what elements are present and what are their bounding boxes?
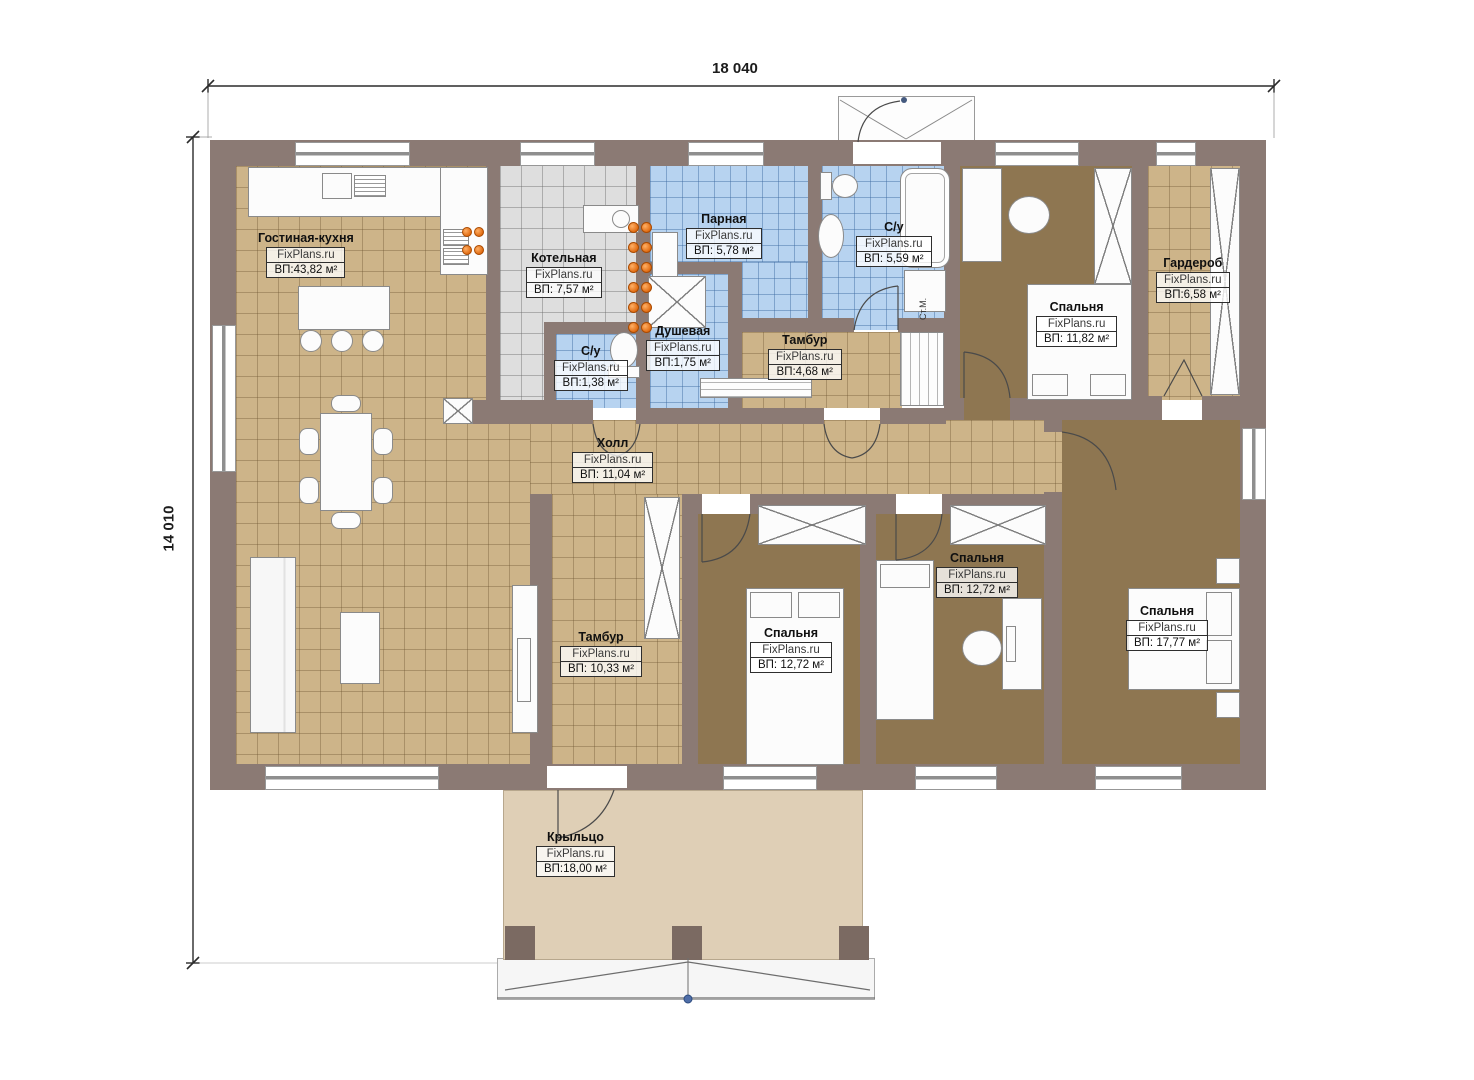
- label-vestibule-bottom: Тамбур FixPlans.ru ВП: 10,33 м²: [560, 630, 642, 677]
- pillow: [750, 592, 792, 618]
- sofa: [250, 557, 296, 733]
- porch-post: [672, 926, 702, 960]
- entry-vestibule: [838, 96, 975, 142]
- watermark: FixPlans.ru: [647, 341, 719, 356]
- wall-boiler-hall-a: [473, 400, 593, 424]
- wall-bedroom-se-left-stub: [1044, 420, 1062, 432]
- room-area: ВП:43,82 м²: [267, 263, 344, 277]
- dining-chair: [331, 395, 361, 412]
- dimension-width: 18 040: [712, 60, 758, 77]
- room-area: ВП:1,38 м²: [555, 376, 627, 390]
- label-bedroom-sw: Спальня FixPlans.ru ВП: 12,72 м²: [750, 626, 832, 673]
- sauna-heater-stone: [641, 302, 652, 313]
- hall-cabinet: [900, 332, 944, 406]
- watermark: FixPlans.ru: [937, 568, 1017, 583]
- label-vestibule-top: Тамбур FixPlans.ru ВП:4,68 м²: [768, 333, 842, 380]
- room-name: Гостиная-кухня: [258, 231, 354, 245]
- room-name: Парная: [701, 212, 746, 226]
- room-name: Спальня: [1140, 604, 1194, 618]
- pillow: [1206, 640, 1232, 684]
- label-bedroom-se: Спальня FixPlans.ru ВП: 17,77 м²: [1126, 604, 1208, 651]
- room-area: ВП: 12,72 м²: [937, 583, 1017, 597]
- sauna-heater-stone: [628, 322, 639, 333]
- stove-burner-icon: [474, 245, 484, 255]
- watermark: FixPlans.ru: [687, 229, 761, 244]
- window-right-bedroom-se: [1242, 428, 1266, 500]
- pillow: [1090, 374, 1126, 396]
- dining-chair: [299, 428, 319, 455]
- window-top-sauna: [688, 142, 764, 166]
- sauna-heater-stone: [641, 262, 652, 273]
- window-bottom-bedroom-s: [915, 766, 997, 790]
- kitchen-sink: [322, 173, 352, 199]
- wall-vestibule-bedroom-sw: [682, 494, 698, 765]
- room-name: Холл: [597, 436, 628, 450]
- stove-burner-icon: [474, 227, 484, 237]
- room-name: Крыльцо: [547, 830, 604, 844]
- room-area: ВП: 5,78 м²: [687, 244, 761, 258]
- entry-door-opening: [853, 142, 941, 164]
- dining-chair: [373, 428, 393, 455]
- wall-bedroom-wardrobe: [1132, 165, 1148, 420]
- dining-table: [320, 413, 372, 511]
- window-bottom-bedroom-sw: [723, 766, 817, 790]
- porch-post: [839, 926, 869, 960]
- shower-tray: [648, 276, 706, 328]
- wall-wardrobe-bottom-a: [1132, 396, 1162, 420]
- label-sauna: Парная FixPlans.ru ВП: 5,78 м²: [686, 212, 762, 259]
- wall-hall-top-b: [880, 408, 946, 424]
- wardrobe-cabinet: [644, 497, 680, 639]
- window-bottom-living: [265, 766, 439, 790]
- label-porch: Крыльцо FixPlans.ru ВП:18,00 м²: [536, 830, 615, 877]
- pillow: [798, 592, 840, 618]
- coffee-table: [340, 612, 380, 684]
- porch-steps-slab: [497, 958, 875, 1000]
- room-name: Тамбур: [578, 630, 623, 644]
- porch-post: [505, 926, 535, 960]
- wall-bedroom-se-left: [1044, 492, 1062, 765]
- sauna-heater-stone: [628, 302, 639, 313]
- watermark: FixPlans.ru: [1037, 317, 1116, 332]
- label-shower-room: Душевая FixPlans.ru ВП:1,75 м²: [646, 324, 720, 371]
- watermark: FixPlans.ru: [561, 647, 641, 662]
- label-living-kitchen: Гостиная-кухня FixPlans.ru ВП:43,82 м²: [258, 231, 354, 278]
- room-name: Котельная: [531, 251, 596, 265]
- desk-chair: [962, 630, 1002, 666]
- dimension-height: 14 010: [160, 506, 177, 552]
- watermark: FixPlans.ru: [267, 248, 344, 263]
- window-left-living: [212, 325, 236, 472]
- room-name: Тамбур: [782, 333, 827, 347]
- sauna-heater-stone: [628, 222, 639, 233]
- room-area: ВП: 12,72 м²: [751, 658, 831, 672]
- room-name: Спальня: [950, 551, 1004, 565]
- sauna-heater-stone: [641, 222, 652, 233]
- window-bottom-bedroom-se: [1095, 766, 1182, 790]
- toilet-tank-main: [820, 172, 832, 200]
- wall-wardrobe-bottom-b: [1202, 396, 1240, 420]
- room-area: ВП: 11,04 м²: [573, 468, 652, 482]
- stove-burner-icon: [462, 227, 472, 237]
- nightstand: [1216, 692, 1240, 718]
- label-wardrobe-room: Гардероб FixPlans.ru ВП:6,58 м²: [1156, 256, 1230, 303]
- room-area: ВП: 17,77 м²: [1127, 636, 1207, 650]
- watermark: FixPlans.ru: [1157, 273, 1229, 288]
- wall-bath-bottom-b: [898, 318, 946, 332]
- porch-door-opening: [547, 766, 627, 788]
- wall-bedroom-ne-bottom-a: [944, 398, 964, 420]
- room-area: ВП:1,75 м²: [647, 356, 719, 370]
- room-area: ВП: 7,57 м²: [527, 283, 601, 297]
- wardrobe-cabinet: [1094, 168, 1132, 284]
- floor-plan: Ст.М.: [0, 0, 1474, 1080]
- bar-stool: [300, 330, 322, 352]
- computer-monitor: [1006, 626, 1016, 662]
- wall-hall-top-a: [684, 408, 824, 424]
- room-area: ВП: 11,82 м²: [1037, 332, 1116, 346]
- room-area: ВП:4,68 м²: [769, 365, 841, 379]
- tv-screen: [517, 638, 531, 702]
- bathroom-sink: [818, 214, 844, 258]
- dining-chair: [299, 477, 319, 504]
- window-top-wardrobe: [1156, 142, 1196, 166]
- wall-shower-right: [728, 262, 742, 424]
- washing-machine-label: Ст.М.: [918, 280, 928, 320]
- sauna-heater-stone: [628, 282, 639, 293]
- kitchen-island: [298, 286, 390, 330]
- label-bathroom-main: С/у FixPlans.ru ВП: 5,59 м²: [856, 220, 932, 267]
- sauna-heater-stone: [641, 242, 652, 253]
- wardrobe-cabinet: [950, 505, 1046, 545]
- pillow: [1032, 374, 1068, 396]
- sauna-heater-stone: [628, 262, 639, 273]
- watermark: FixPlans.ru: [857, 237, 931, 252]
- watermark: FixPlans.ru: [555, 361, 627, 376]
- desk: [962, 168, 1002, 262]
- window-top-kitchen: [295, 142, 410, 166]
- room-name: Спальня: [764, 626, 818, 640]
- wall-bedroom-ne-bottom-b: [1010, 398, 1134, 420]
- room-name: С/у: [581, 344, 600, 358]
- nightstand: [1216, 558, 1240, 584]
- watermark: FixPlans.ru: [573, 453, 652, 468]
- wardrobe-cabinet: [758, 505, 866, 545]
- window-top-boiler: [520, 142, 595, 166]
- desk-chair: [1008, 196, 1050, 234]
- bar-stool: [362, 330, 384, 352]
- stove-burner-icon: [462, 245, 472, 255]
- kitchen-drainer: [354, 175, 386, 197]
- dining-chair: [373, 477, 393, 504]
- bar-stool: [331, 330, 353, 352]
- window-top-bedroom-ne: [995, 142, 1079, 166]
- watermark: FixPlans.ru: [527, 268, 601, 283]
- room-area: ВП:18,00 м²: [537, 862, 614, 876]
- room-area: ВП: 10,33 м²: [561, 662, 641, 676]
- watermark: FixPlans.ru: [751, 643, 831, 658]
- dining-chair: [331, 512, 361, 529]
- label-boiler-room: Котельная FixPlans.ru ВП: 7,57 м²: [526, 251, 602, 298]
- label-bedroom-s: Спальня FixPlans.ru ВП: 12,72 м²: [936, 551, 1018, 598]
- pillow: [880, 564, 930, 588]
- label-hall: Холл FixPlans.ru ВП: 11,04 м²: [572, 436, 653, 483]
- watermark: FixPlans.ru: [769, 350, 841, 365]
- room-area: ВП:6,58 м²: [1157, 288, 1229, 302]
- label-bedroom-ne: Спальня FixPlans.ru ВП: 11,82 м²: [1036, 300, 1117, 347]
- sauna-heater-stone: [641, 282, 652, 293]
- watermark: FixPlans.ru: [537, 847, 614, 862]
- wall-bath-bottom-a: [742, 318, 854, 332]
- room-name: Душевая: [655, 324, 710, 338]
- room-name: С/у: [884, 220, 903, 234]
- sauna-heater-stone: [628, 242, 639, 253]
- room-area: ВП: 5,59 м²: [857, 252, 931, 266]
- room-name: Спальня: [1050, 300, 1104, 314]
- watermark: FixPlans.ru: [1127, 621, 1207, 636]
- room-name: Гардероб: [1163, 256, 1222, 270]
- floor-sauna-lower: [742, 262, 808, 318]
- floor-hatch-box: [443, 398, 473, 424]
- toilet-bowl-main: [832, 174, 858, 198]
- shoe-bench: [700, 378, 812, 398]
- label-wc-small: С/у FixPlans.ru ВП:1,38 м²: [554, 344, 628, 391]
- wall-kitchen-boiler: [486, 165, 500, 415]
- pillow: [1206, 592, 1232, 636]
